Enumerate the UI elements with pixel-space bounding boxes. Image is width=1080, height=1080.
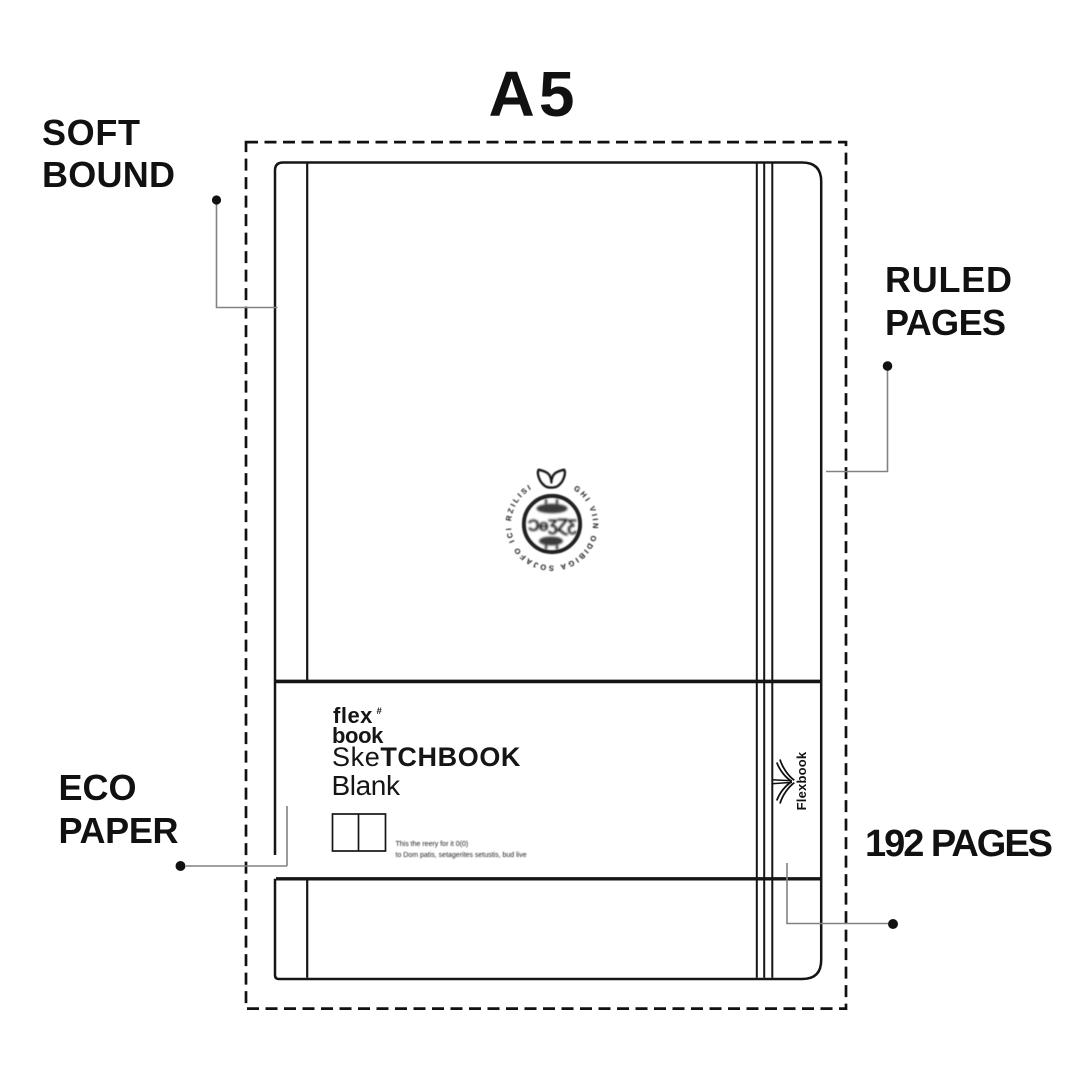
svg-text:PAPER: PAPER [59, 810, 179, 851]
svg-text:BOUND: BOUND [42, 154, 175, 195]
svg-text:PAGES: PAGES [885, 302, 1006, 343]
svg-text:SOFT: SOFT [42, 112, 140, 153]
svg-text:This the reery for it 0(0): This the reery for it 0(0) [396, 841, 469, 848]
svg-text:to Dom patis, setagerites setu: to Dom patis, setagerites setustis, bud … [396, 852, 527, 859]
svg-text:A5: A5 [489, 58, 575, 130]
svg-text:#: # [377, 706, 383, 717]
svg-text:ƆɵƷⱿƸ: ƆɵƷⱿƸ [528, 517, 577, 536]
svg-text:Blank: Blank [332, 770, 401, 801]
svg-text:Flexbook: Flexbook [794, 751, 809, 810]
svg-text:SkeTCHBOOK: SkeTCHBOOK [332, 742, 521, 772]
svg-text:RULED: RULED [885, 259, 1012, 300]
svg-text:ECO: ECO [59, 767, 137, 808]
svg-text:192 PAGES: 192 PAGES [865, 823, 1053, 865]
